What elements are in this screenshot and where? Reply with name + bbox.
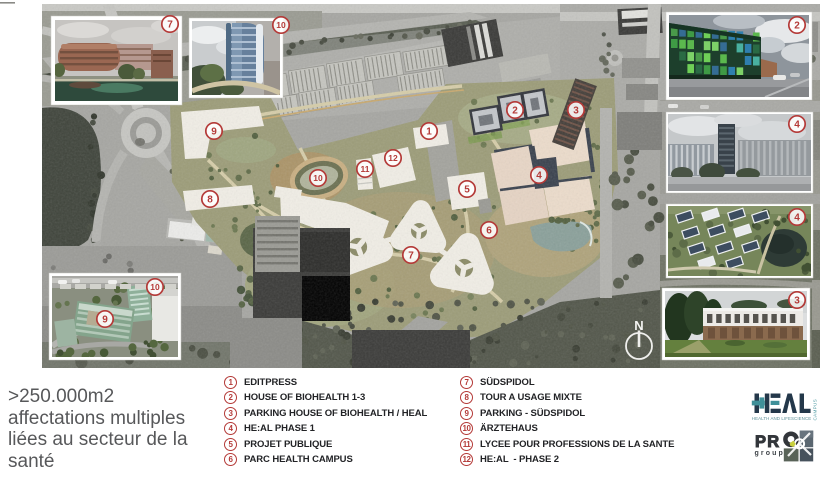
svg-text:12: 12	[388, 153, 398, 163]
svg-text:9: 9	[102, 315, 108, 326]
svg-text:4: 4	[536, 171, 542, 182]
svg-text:8: 8	[207, 195, 213, 206]
svg-text:5: 5	[464, 185, 470, 196]
svg-text:6: 6	[486, 226, 492, 237]
svg-text:1: 1	[426, 127, 432, 138]
svg-text:11: 11	[361, 164, 370, 174]
svg-text:3: 3	[573, 106, 579, 117]
svg-text:N: N	[634, 318, 643, 333]
svg-text:CAMPUS: CAMPUS	[813, 399, 818, 420]
svg-text:4: 4	[794, 213, 800, 224]
svg-text:PR: PR	[755, 433, 780, 451]
svg-text:group: group	[755, 450, 785, 457]
svg-text:7: 7	[167, 20, 173, 31]
svg-text:9: 9	[211, 127, 217, 138]
svg-text:10: 10	[313, 173, 323, 183]
svg-text:10: 10	[150, 282, 160, 292]
svg-text:4: 4	[794, 120, 800, 131]
svg-text:7: 7	[408, 251, 414, 262]
svg-text:3: 3	[794, 296, 800, 307]
svg-text:10: 10	[276, 20, 286, 30]
svg-text:HEALTH AND LIFESCIENCE: HEALTH AND LIFESCIENCE	[752, 416, 811, 421]
svg-text:2: 2	[512, 106, 518, 117]
svg-text:2: 2	[794, 21, 800, 32]
